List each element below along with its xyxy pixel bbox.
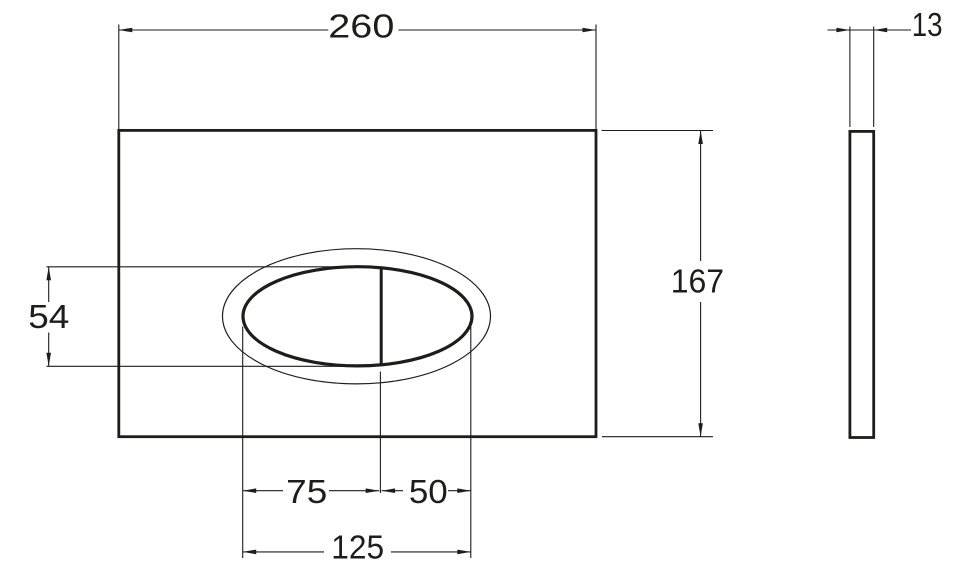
svg-text:125: 125: [331, 529, 384, 566]
svg-text:54: 54: [28, 299, 69, 336]
svg-text:260: 260: [328, 8, 394, 45]
svg-text:167: 167: [671, 263, 724, 300]
svg-text:75: 75: [286, 474, 327, 511]
svg-text:50: 50: [409, 474, 448, 511]
svg-text:13: 13: [912, 7, 943, 44]
